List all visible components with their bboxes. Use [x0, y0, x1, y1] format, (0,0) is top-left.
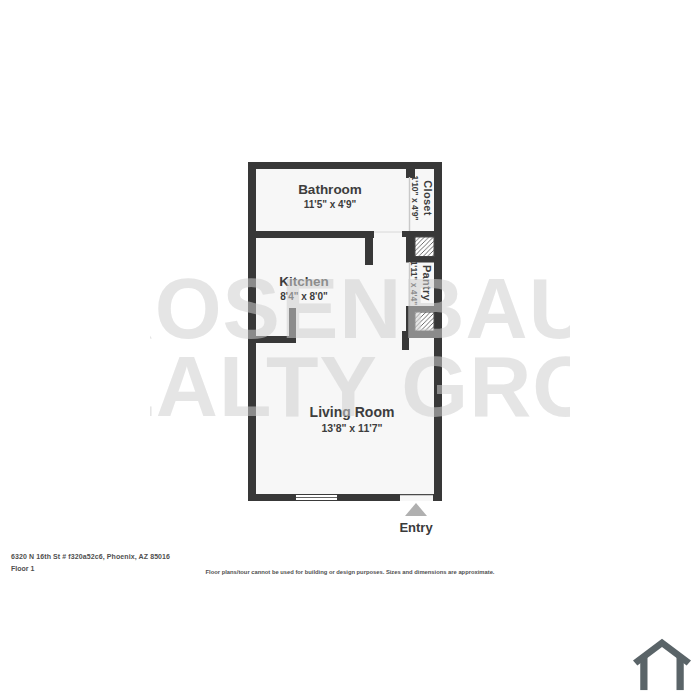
room-name: Living Room [310, 404, 395, 422]
room-dimensions: 8'4" x 8'0" [279, 291, 329, 304]
room-name: Pantry [419, 261, 433, 306]
room-dimensions: 1'11" x 4'4" [409, 261, 420, 306]
room-label-pantry: Pantry 1'11" x 4'4" [409, 261, 433, 306]
floorplan-drawing [0, 0, 700, 700]
entry-arrow-icon [405, 503, 427, 516]
entry-label: Entry [399, 520, 432, 535]
room-label-kitchen: Kitchen 8'4" x 8'0" [279, 274, 329, 303]
room-label-bathroom: Bathroom 11'5" x 4'9" [298, 182, 362, 211]
room-label-closet: Closet 1'10" x 4'9" [410, 175, 434, 220]
room-name: Kitchen [279, 274, 329, 291]
room-dimensions: 13'8" x 11'7" [310, 421, 395, 434]
room-name: Closet [420, 175, 434, 220]
room-dimensions: 1'10" x 4'9" [410, 175, 421, 220]
room-dimensions: 11'5" x 4'9" [298, 199, 362, 212]
room-name: Bathroom [298, 182, 362, 199]
window [296, 495, 338, 501]
room-label-living-room: Living Room 13'8" x 11'7" [310, 404, 395, 435]
